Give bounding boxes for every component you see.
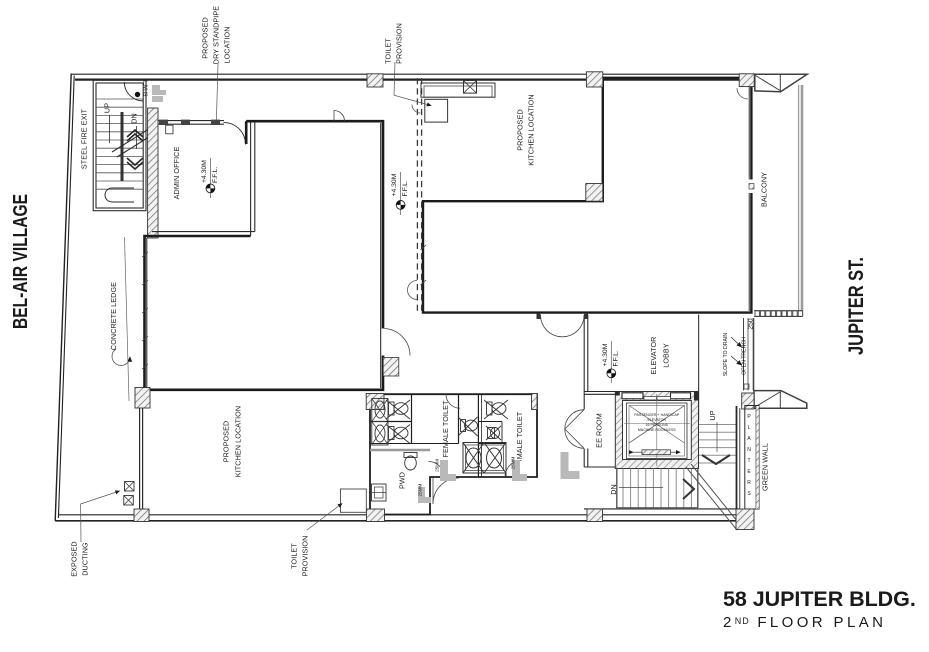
- svg-text:PROVISION: PROVISION: [301, 536, 310, 577]
- svg-text:LOBBY: LOBBY: [662, 343, 671, 368]
- svg-text:UP: UP: [708, 410, 717, 420]
- svg-text:16 PERSONS: 16 PERSONS: [646, 423, 669, 427]
- svg-text:OPEN TRENCH: OPEN TRENCH: [742, 337, 748, 375]
- svg-text:25MM: 25MM: [511, 456, 516, 469]
- svg-text:TOILET: TOILET: [384, 38, 393, 64]
- svg-text:PROVISION: PROVISION: [395, 23, 404, 64]
- svg-text:DN: DN: [609, 484, 618, 495]
- svg-text:DN: DN: [130, 113, 139, 124]
- svg-text:PROPOSED: PROPOSED: [516, 109, 525, 151]
- svg-text:KITCHEN LOCATION: KITCHEN LOCATION: [234, 406, 243, 477]
- svg-text:GREEN WALL: GREEN WALL: [761, 443, 770, 491]
- svg-text:PASSENGER + HANDICAP: PASSENGER + HANDICAP: [634, 413, 679, 417]
- svg-text:SHAFT: SHAFT: [144, 79, 150, 97]
- svg-text:F.F.L.: F.F.L.: [212, 167, 219, 183]
- svg-text:FEMALE TOILET: FEMALE TOILET: [441, 400, 450, 457]
- svg-text:250: 250: [748, 318, 755, 330]
- svg-text:ELEVATOR: ELEVATOR: [648, 418, 667, 422]
- svg-text:SLOPE TO DRAIN: SLOPE TO DRAIN: [723, 333, 729, 377]
- svg-text:25MM: 25MM: [417, 483, 422, 496]
- svg-text:N: N: [747, 447, 751, 453]
- svg-text:L: L: [748, 425, 751, 431]
- svg-text:+4.30M: +4.30M: [391, 173, 398, 196]
- svg-text:PWD: PWD: [398, 472, 407, 489]
- svg-text:DUCTING: DUCTING: [81, 542, 90, 576]
- svg-text:+4.30M: +4.30M: [602, 343, 609, 366]
- svg-text:EXPOSED: EXPOSED: [70, 541, 79, 576]
- svg-text:R: R: [747, 480, 751, 486]
- svg-text:+4.30M: +4.30M: [201, 160, 208, 183]
- svg-text:ELEVATOR: ELEVATOR: [649, 337, 658, 375]
- svg-text:DRY STANDPIPE: DRY STANDPIPE: [212, 6, 221, 65]
- svg-text:JUPITER ST.: JUPITER ST.: [844, 257, 868, 355]
- svg-text:PROPOSED: PROPOSED: [201, 17, 210, 59]
- svg-text:F.F.L.: F.F.L.: [402, 180, 409, 196]
- svg-text:KITCHEN LOCATION: KITCHEN LOCATION: [527, 94, 536, 165]
- svg-text:LOCATION: LOCATION: [223, 26, 232, 63]
- svg-text:58 JUPITER BLDG.: 58 JUPITER BLDG.: [723, 587, 916, 611]
- svg-text:T: T: [747, 458, 750, 464]
- svg-text:UP: UP: [103, 103, 112, 113]
- svg-text:MALE TOILET: MALE TOILET: [515, 411, 524, 459]
- svg-text:STEEL FIRE EXIT: STEEL FIRE EXIT: [80, 108, 89, 169]
- svg-text:CONCRETE LEDGE: CONCRETE LEDGE: [109, 282, 118, 350]
- svg-text:F.F.L.: F.F.L.: [613, 350, 620, 366]
- svg-text:TOILET: TOILET: [290, 543, 299, 569]
- svg-text:25MM: 25MM: [435, 459, 440, 472]
- svg-text:MACHINE ROOMLESS: MACHINE ROOMLESS: [638, 428, 677, 432]
- svg-text:BEL-AIR VILLAGE: BEL-AIR VILLAGE: [10, 194, 32, 329]
- svg-text:EE ROOM: EE ROOM: [595, 413, 604, 448]
- svg-text:BALCONY: BALCONY: [760, 172, 769, 207]
- svg-text:ADMIN OFFICE: ADMIN OFFICE: [172, 147, 181, 200]
- svg-text:PROPOSED: PROPOSED: [222, 421, 231, 463]
